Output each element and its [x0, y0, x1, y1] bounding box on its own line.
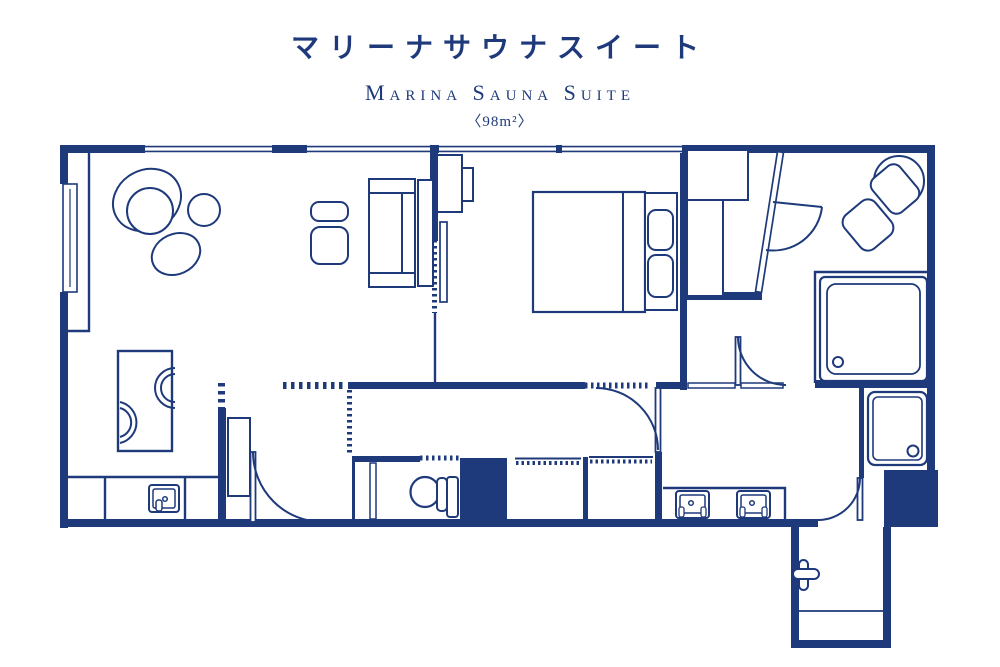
wall-toilet-top	[352, 456, 420, 462]
sink-drain	[163, 497, 168, 502]
sliding-door-leaf	[440, 222, 447, 302]
pillow	[648, 210, 673, 250]
window-top-living-1	[145, 147, 272, 152]
wall-toilet-left	[352, 462, 355, 519]
bed	[533, 192, 645, 312]
sauna-area	[687, 150, 927, 465]
bedroom	[437, 155, 677, 312]
basin-tap	[701, 507, 706, 517]
wall-bathtub-left	[859, 386, 864, 478]
sofa	[369, 179, 415, 287]
porch-wall-right	[883, 527, 891, 648]
utility-shaft	[460, 458, 507, 521]
floor-plan	[0, 0, 1000, 667]
sauna-bench-upper	[687, 150, 748, 200]
wall-right	[927, 145, 935, 523]
window-top-bedroom-1	[438, 147, 556, 152]
bathtub-drain	[908, 446, 919, 457]
entrance-porch	[793, 560, 883, 611]
sauna-door-leaf	[773, 202, 822, 207]
window-top-bedroom-2	[562, 147, 682, 152]
wall-top	[272, 145, 307, 153]
wall-alcove	[68, 153, 89, 331]
bathtub	[868, 392, 927, 465]
dining-table	[118, 351, 172, 451]
basin-drain	[689, 501, 694, 506]
console-board	[418, 180, 433, 286]
wall-bottom	[60, 519, 818, 527]
kitchen-counter	[68, 477, 220, 519]
shower-drain	[833, 357, 843, 367]
wall-bedroom-sauna	[680, 153, 687, 390]
toilet-tank	[447, 477, 458, 517]
wall-top	[60, 145, 145, 153]
porch-wall-bottom	[791, 640, 891, 648]
pillow	[648, 255, 673, 297]
wall-left	[60, 145, 68, 184]
wall-top	[430, 145, 439, 153]
handle-lever	[793, 569, 819, 579]
tv-icon	[462, 168, 473, 201]
door-swing-living	[253, 452, 323, 522]
window-top-living-2	[307, 147, 430, 152]
wall-left	[60, 292, 68, 528]
wall-corridor-north	[348, 382, 585, 389]
sofa-table-large	[311, 227, 348, 264]
shower-tray	[820, 277, 927, 381]
side-table	[188, 194, 220, 226]
sauna-bench-lower	[687, 200, 723, 296]
wall-thin-sauna-anteroom	[688, 383, 735, 388]
basin-drain	[750, 501, 755, 506]
entrance-door-swing	[818, 478, 860, 520]
door-swing-bath-anteroom	[738, 337, 786, 385]
wall-top-mullion	[556, 145, 562, 153]
door-swing-bedroom-corridor	[596, 388, 658, 450]
toilet-icon	[411, 477, 459, 517]
wall-closet-right	[655, 452, 662, 520]
sink-faucet	[156, 500, 162, 511]
sofa-table-small	[311, 202, 348, 221]
sauna-glass-wall	[756, 152, 784, 293]
wall-closet-divider	[583, 457, 588, 520]
toilet-pocket-door	[370, 463, 376, 519]
lounge-chair-seat	[127, 188, 173, 234]
basin-tap	[679, 507, 684, 517]
washbasin-icon	[737, 491, 770, 518]
basin-tap	[740, 507, 745, 517]
basin-tap	[762, 507, 767, 517]
toilet-seat	[437, 478, 447, 511]
porch-wall-left	[791, 527, 799, 648]
kitchen-sink-icon	[149, 485, 179, 512]
storage-cabinet	[228, 418, 250, 496]
toilet-bowl	[411, 477, 440, 507]
utility-block	[884, 470, 938, 527]
wall-vestibule	[218, 408, 226, 527]
washbasin-icon	[676, 491, 709, 518]
tv-board	[437, 155, 462, 212]
